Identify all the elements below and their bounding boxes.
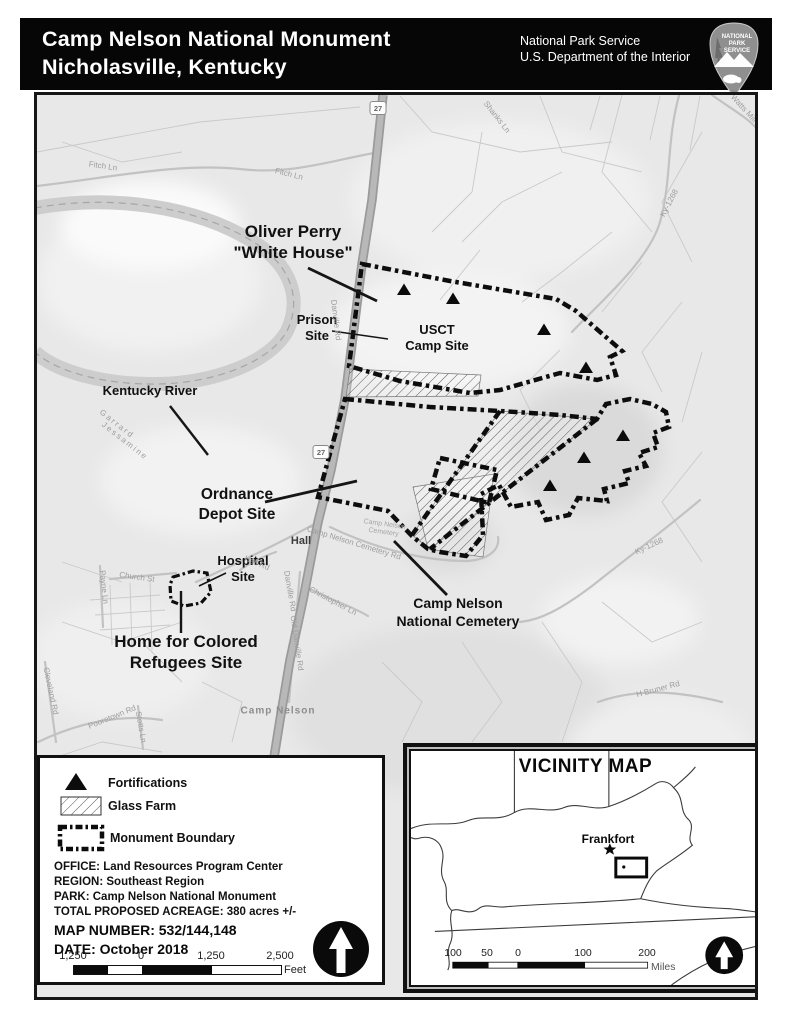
legend-panel: Fortifications Glass Farm Monument Bound…: [37, 755, 385, 985]
west-tennessee-river: [448, 911, 452, 970]
title-line-2: Nicholasville, Kentucky: [42, 53, 391, 81]
map-title: Camp Nelson National Monument Nicholasvi…: [42, 25, 391, 81]
scale-unit: Feet: [284, 964, 306, 976]
nps-arrowhead-logo: NATIONAL PARK SERVICE: [704, 21, 764, 99]
agency-text: National Park Service U.S. Department of…: [520, 33, 690, 65]
vic-scale-tick-1: 50: [481, 947, 493, 959]
map-sheet: Camp Nelson National Monument Nicholasvi…: [0, 0, 791, 1023]
fortification-triangle-symbol: [65, 773, 87, 790]
agency-line-1: National Park Service: [520, 33, 690, 49]
scale-tick-0: 1,250: [59, 950, 87, 962]
main-map: Oliver Perry "White House"Prison SiteUSC…: [34, 92, 758, 1000]
vic-scale-tick-2: 0: [515, 947, 521, 959]
kentucky-tennessee-border: [452, 899, 641, 912]
vicinity-scale-bar: [453, 962, 648, 968]
virginia-south-border: [641, 899, 758, 913]
kentucky-east-border: [641, 788, 693, 899]
site-location-box: [616, 858, 647, 877]
vic-scale-unit: Miles: [651, 961, 676, 973]
logo-text-1: NATIONAL: [722, 34, 753, 40]
header-bar: Camp Nelson National Monument Nicholasvi…: [20, 18, 772, 90]
north-arrow: [310, 918, 372, 980]
frankfort-label: Frankfort: [582, 832, 635, 846]
legend-label-glass-farm: Glass Farm: [108, 799, 176, 813]
scale-tick-1: 0: [138, 950, 144, 962]
agency-line-2: U.S. Department of the Interior: [520, 49, 690, 65]
boundary-symbol: [56, 823, 106, 853]
vicinity-north-arrow: [705, 936, 743, 974]
legend-acreage-line: TOTAL PROPOSED ACREAGE: 380 acres +/-: [54, 906, 296, 918]
vicinity-title: VICINITY MAP: [411, 756, 758, 778]
vic-scale-tick-3: 100: [574, 947, 592, 959]
site-location-dot: [622, 865, 625, 868]
vicinity-map: VICINITY MAP Frankfort 100 50 0 100 200 …: [403, 743, 758, 993]
logo-text-2: PARK: [729, 41, 746, 47]
route-shield-27-1: 27: [313, 445, 330, 459]
mississippi-river-border: [411, 834, 452, 910]
tennessee-south-border: [435, 917, 758, 932]
title-line-1: Camp Nelson National Monument: [42, 25, 391, 53]
legend-label-fortifications: Fortifications: [108, 776, 187, 790]
vic-scale-tick-4: 200: [638, 947, 656, 959]
scale-tick-3: 2,500: [266, 950, 294, 962]
route-shield-27-0: 27: [370, 101, 387, 115]
diagonal-hatch-symbol: [60, 796, 102, 816]
legend-map-number: MAP NUMBER: 532/144,148: [54, 922, 237, 938]
scale-tick-2: 1,250: [197, 950, 225, 962]
vic-scale-tick-0: 100: [444, 947, 462, 959]
legend-office-line: OFFICE: Land Resources Program Center: [54, 861, 283, 873]
ohio-river-border: [411, 782, 673, 831]
vicinity-inner: VICINITY MAP Frankfort 100 50 0 100 200 …: [409, 749, 758, 987]
legend-region-line: REGION: Southeast Region: [54, 876, 204, 888]
legend-label-monument-boundary: Monument Boundary: [110, 831, 235, 845]
legend-park-line: PARK: Camp Nelson National Monument: [54, 891, 276, 903]
scale-bar: [73, 965, 282, 975]
